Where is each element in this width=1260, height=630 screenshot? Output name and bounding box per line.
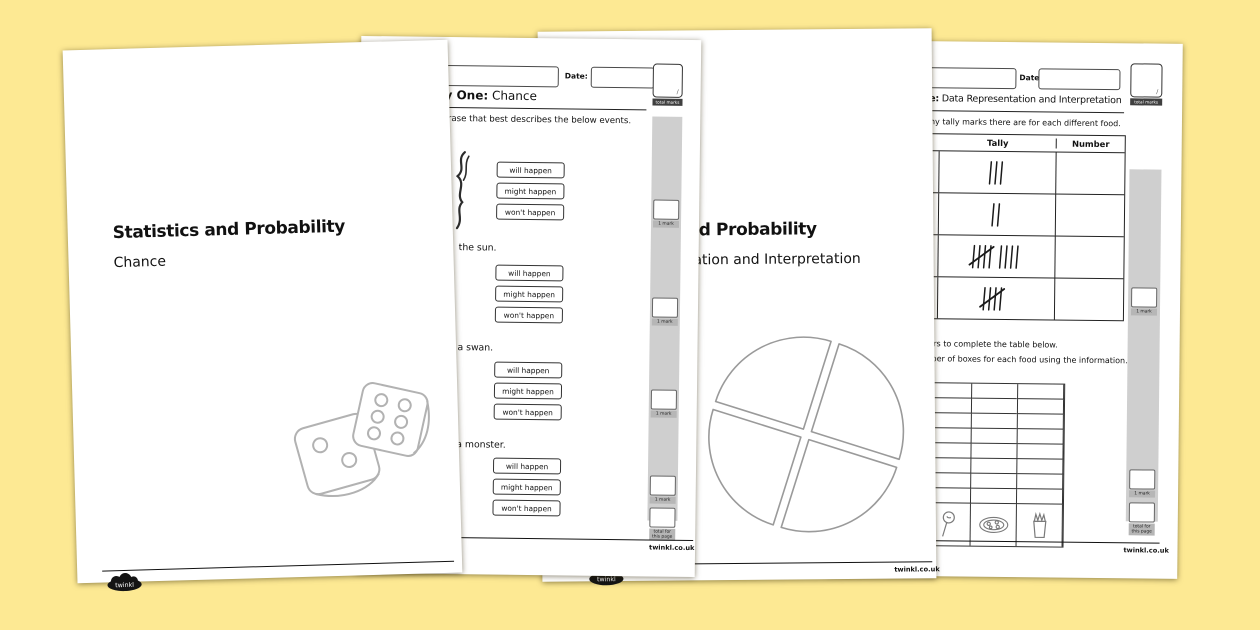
grid-cell — [1018, 414, 1064, 429]
website-text: twinkl.co.uk — [894, 565, 939, 573]
website-text: twinkl.co.uk — [649, 543, 694, 552]
grid-cell — [972, 414, 1018, 429]
event-sentence-fragment: a swan. — [457, 342, 493, 353]
grid-cell — [971, 444, 1017, 459]
total-marks-value-box: / — [1130, 63, 1162, 97]
chance-option-box: won't happen — [495, 307, 563, 324]
twinkl-logo-text: twinkl — [597, 576, 616, 583]
grid-cell — [1017, 489, 1063, 504]
quartered-circle-illustration — [705, 334, 907, 536]
chance-option-box: will happen — [494, 362, 562, 379]
chance-option-box: will happen — [495, 265, 563, 282]
tally-marks — [986, 201, 1007, 227]
twinkl-logo-text: twinkl — [115, 582, 134, 590]
chance-option-box: won't happen — [494, 404, 562, 421]
mark-label: 1 mark — [651, 411, 677, 418]
number-cell — [1056, 153, 1124, 195]
chance-option-box: might happen — [495, 286, 563, 303]
mark-answer-box — [652, 298, 678, 318]
mark-label: 1 mark — [653, 221, 679, 228]
event-sentence-fragment: the sun. — [459, 242, 497, 253]
mark-box: 1 mark — [1129, 469, 1155, 497]
total-marks-label: total marks — [652, 99, 682, 106]
mark-answer-box — [1129, 469, 1155, 489]
chance-option-box: might happen — [496, 183, 564, 200]
total-marks-label: total marks — [1130, 98, 1162, 105]
mark-label: 1 mark — [652, 319, 678, 326]
activity-heading-rest: Data Representation and Interpretation — [939, 93, 1122, 106]
event-sentence-fragment: a monster. — [456, 439, 506, 451]
page-subtitle: Chance — [113, 254, 166, 271]
tally-cell — [939, 151, 1056, 193]
tally-column-header: Tally — [940, 137, 1057, 148]
total-marks-slash: / — [677, 89, 679, 96]
tally-cell — [938, 235, 1055, 277]
mark-box: 1 mark — [652, 298, 678, 326]
chips-cup-icon — [1029, 511, 1049, 539]
page-total-label: total for this page — [1129, 523, 1155, 535]
tally-cell — [938, 277, 1055, 319]
chance-option-box: will happen — [497, 162, 565, 179]
grid-cell — [971, 459, 1017, 474]
mark-answer-box — [651, 390, 677, 410]
grid-cell — [971, 489, 1017, 504]
mark-box: 1 mark — [1131, 287, 1157, 315]
grid-cell — [971, 474, 1017, 489]
page-total-answer-box — [649, 508, 675, 528]
chance-option-box: might happen — [494, 383, 562, 400]
page-total-box: total for this page — [649, 508, 675, 541]
worksheet-page-chance-cover: Statistics and Probability Chance twinkl — [63, 40, 463, 584]
total-marks-slash: / — [1156, 89, 1158, 96]
tally-cell — [939, 193, 1056, 235]
pizza-icon — [977, 515, 1009, 535]
tally-marks — [977, 285, 1014, 311]
mark-box: 1 mark — [653, 200, 679, 228]
total-marks-value-box: / — [653, 64, 683, 98]
twinkl-logo: twinkl — [105, 573, 143, 592]
mark-label: 1 mark — [650, 497, 676, 504]
date-label: Date: — [565, 71, 588, 80]
illustration-fragment — [451, 150, 470, 230]
mark-label: 1 mark — [1131, 308, 1157, 315]
page-total-answer-box — [1129, 502, 1155, 522]
page-title: Statistics and Probability — [112, 217, 345, 243]
chance-option-box: won't happen — [492, 500, 560, 517]
mark-answer-box — [653, 200, 679, 220]
number-cell — [1055, 237, 1123, 279]
chance-option-box: won't happen — [496, 204, 564, 221]
number-cell — [1056, 195, 1124, 237]
page-total-box: total for this page — [1129, 502, 1155, 535]
grid-cell — [1018, 384, 1064, 399]
mark-box: 1 mark — [651, 390, 677, 418]
tally-marks — [967, 243, 1026, 270]
dice-illustration — [277, 375, 451, 535]
worksheet-preview-canvas: { "background_color": "#fde993", "brand"… — [0, 0, 1260, 630]
grid-cell — [972, 399, 1018, 414]
grid-cell — [1017, 474, 1063, 489]
chance-option-box: might happen — [493, 479, 561, 496]
grid-cell — [1018, 429, 1064, 444]
total-marks-box: / total marks — [652, 64, 683, 106]
website-text: twinkl.co.uk — [1123, 546, 1168, 554]
grid-cell — [1018, 399, 1064, 414]
grid-cell — [972, 384, 1018, 399]
total-marks-box: / total marks — [1130, 63, 1162, 105]
mark-box: 1 mark — [650, 476, 676, 504]
date-field — [591, 67, 655, 89]
number-cell — [1055, 279, 1123, 321]
number-column-header: Number — [1057, 139, 1125, 150]
toffee-apple-icon — [937, 509, 957, 539]
grid-cell — [972, 429, 1018, 444]
activity-heading-rest: Chance — [488, 88, 537, 103]
footer-divider — [102, 561, 454, 572]
tally-marks — [984, 159, 1011, 185]
grid-cell — [1017, 459, 1063, 474]
mark-answer-box — [1131, 287, 1157, 307]
grid-cell — [1017, 444, 1063, 459]
mark-answer-box — [650, 476, 676, 496]
mark-label: 1 mark — [1129, 490, 1155, 497]
date-field — [1038, 68, 1120, 90]
chance-option-box: will happen — [493, 458, 561, 475]
